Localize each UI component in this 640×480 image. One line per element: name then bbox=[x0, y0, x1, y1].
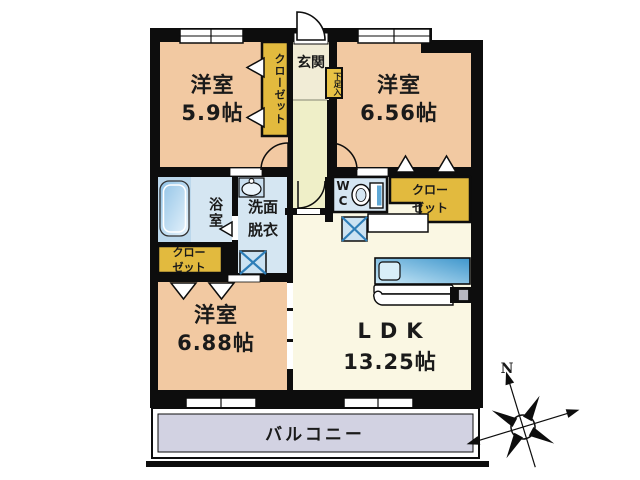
sink-icon bbox=[239, 178, 264, 197]
wc-label: WC bbox=[335, 179, 351, 209]
entrance-label: 玄関 bbox=[291, 52, 331, 72]
washroom-label: 洗面脱衣 bbox=[237, 196, 289, 241]
balcony-label: バルコニー bbox=[235, 420, 395, 445]
shoe-cabinet-label: 下足入 bbox=[329, 71, 341, 97]
kitchen-counter-icon bbox=[374, 258, 471, 305]
bathtub-icon bbox=[160, 181, 189, 236]
floorplan-canvas: 洋室5.9帖 洋室6.56帖 洋室6.88帖 LDK13.25帖 玄関 クローゼ… bbox=[0, 0, 640, 480]
washing-machine-icon bbox=[240, 251, 266, 274]
closet-right-label: クローゼット bbox=[392, 181, 468, 217]
window-bottom-right bbox=[344, 398, 413, 408]
hall-closet-label: クローゼット bbox=[267, 47, 285, 131]
bedroom1-label: 洋室5.9帖 bbox=[155, 72, 270, 127]
bedroom3-label: 洋室6.88帖 bbox=[155, 302, 277, 357]
bedroom2-label: 洋室6.56帖 bbox=[338, 72, 460, 127]
floorplan-drawing bbox=[0, 0, 640, 480]
bathroom-label: 浴室 bbox=[201, 188, 225, 238]
ldk-label: LDK13.25帖 bbox=[318, 318, 462, 376]
window-top-left bbox=[180, 29, 243, 43]
refrigerator-icon bbox=[342, 217, 367, 241]
entrance-door-arc bbox=[294, 12, 328, 44]
window-bottom-left bbox=[186, 398, 256, 408]
compass-north-label: N bbox=[498, 361, 516, 377]
sliding-door-bedroom3 bbox=[287, 283, 293, 369]
closet-left-label: クローゼット bbox=[157, 246, 221, 276]
window-top-right bbox=[358, 29, 430, 43]
